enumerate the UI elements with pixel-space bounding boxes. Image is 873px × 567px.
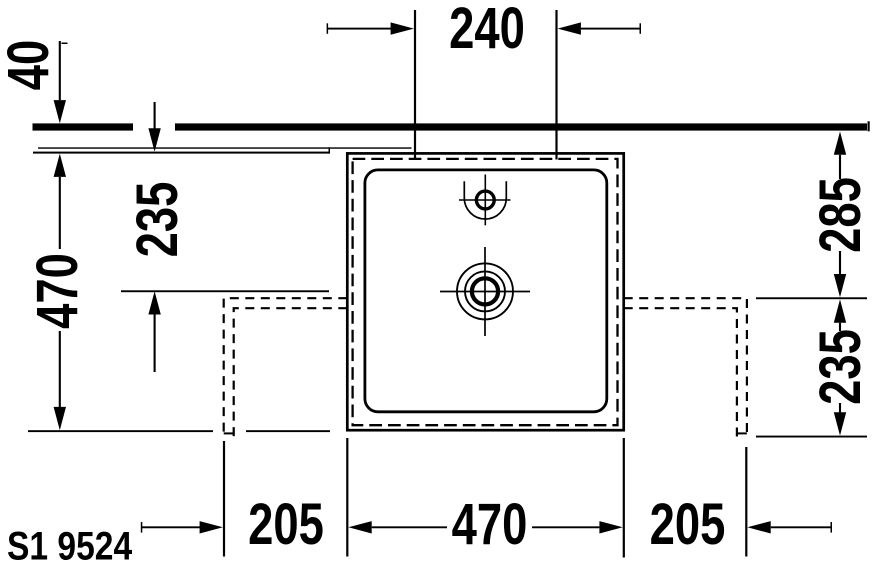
svg-text:205: 205 [248, 493, 324, 558]
svg-text:285: 285 [808, 177, 873, 253]
svg-text:S1 9524: S1 9524 [7, 524, 133, 562]
svg-text:40: 40 [0, 40, 61, 90]
svg-text:205: 205 [650, 493, 726, 558]
svg-text:470: 470 [26, 253, 91, 329]
svg-text:470: 470 [452, 493, 528, 558]
svg-text:240: 240 [449, 0, 525, 61]
svg-text:235: 235 [808, 329, 873, 405]
svg-text:235: 235 [126, 182, 191, 258]
